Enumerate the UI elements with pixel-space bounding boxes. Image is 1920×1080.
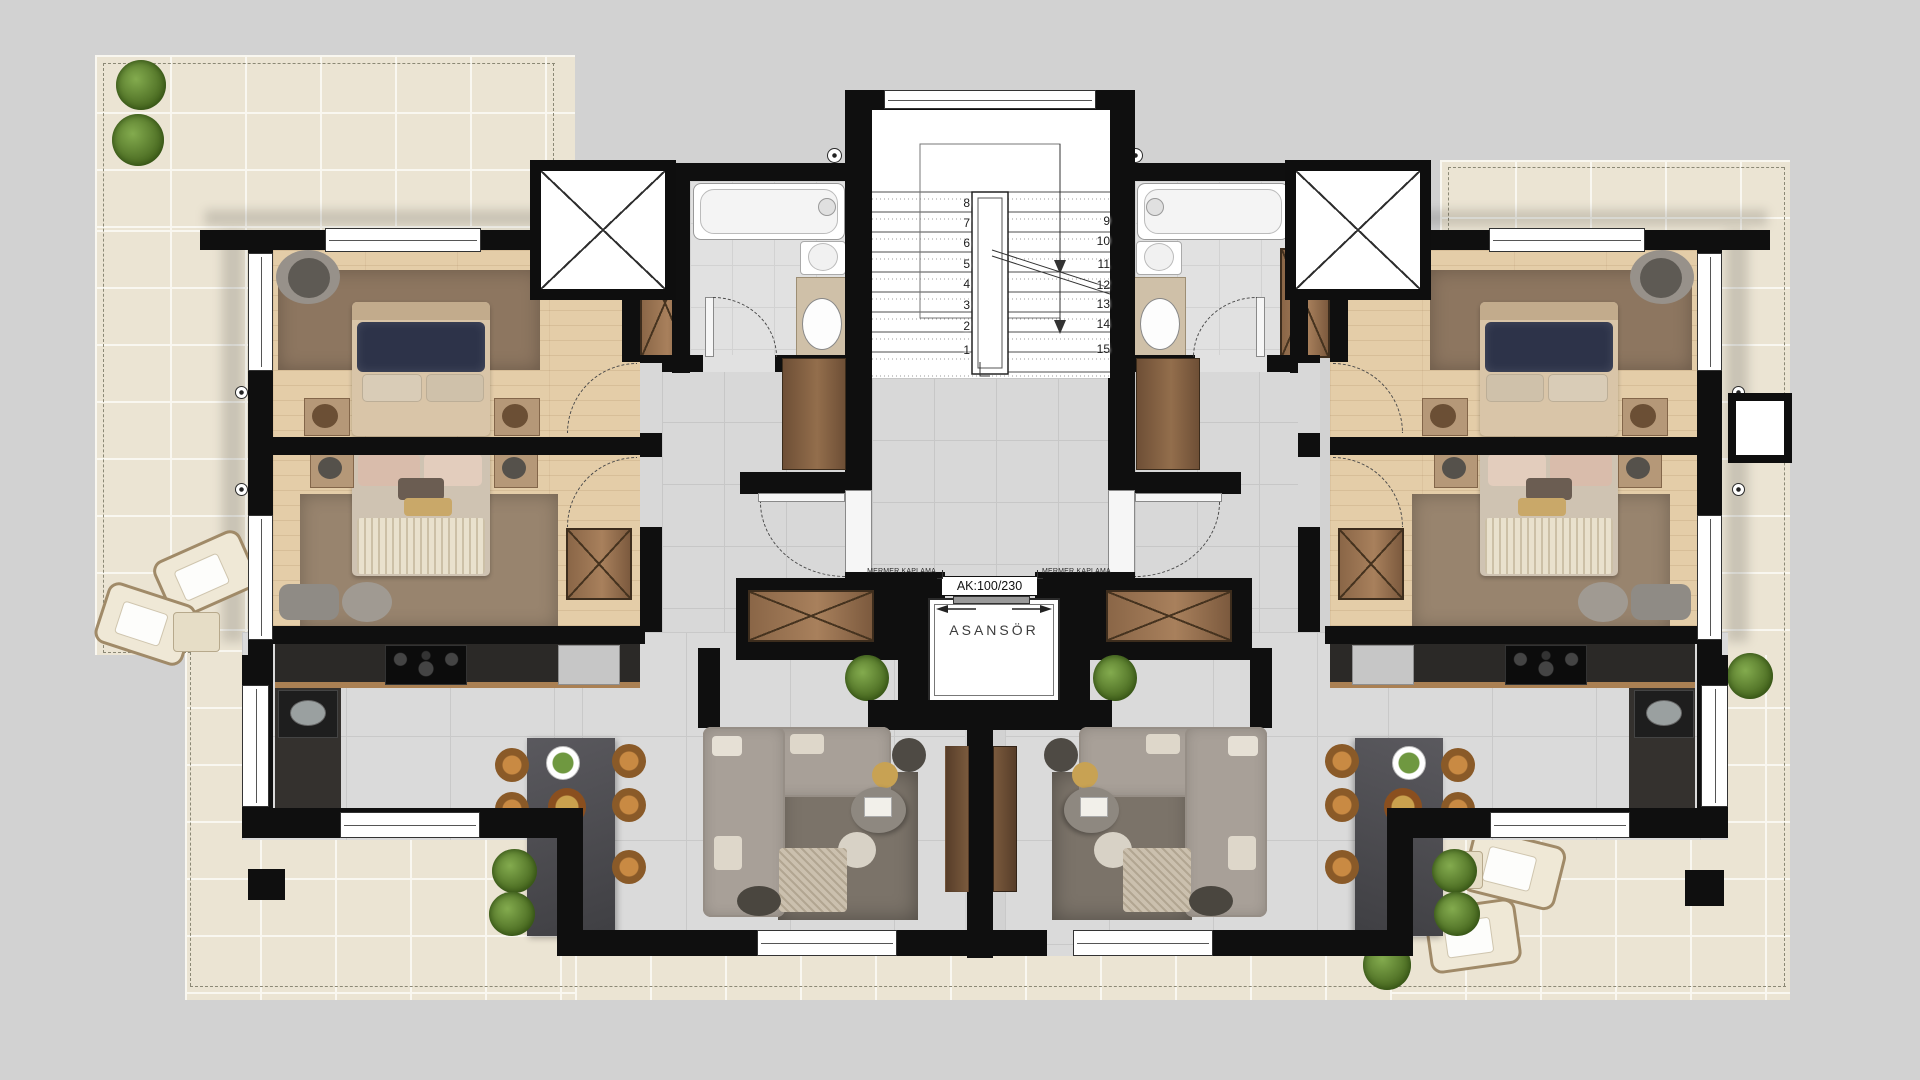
armchair	[1631, 584, 1691, 620]
elevator-lintel-label: AK:100/230	[957, 579, 1022, 593]
coffee-table-book	[864, 797, 892, 817]
wall	[868, 700, 1112, 730]
stair-linework	[872, 110, 1110, 378]
ottoman	[342, 582, 392, 622]
door-stop	[235, 483, 248, 496]
terrace-trim	[190, 652, 191, 986]
nightstand	[502, 457, 526, 479]
ottoman	[779, 848, 847, 912]
wardrobe	[1338, 528, 1404, 600]
elevator-lintel: AK:100/230	[941, 576, 1038, 596]
wall	[1250, 648, 1272, 728]
toilet-seat	[1144, 243, 1174, 271]
hall-cabinet	[782, 358, 846, 470]
door-leaf	[1256, 297, 1265, 357]
coffee-table-book	[1080, 797, 1108, 817]
side-table	[173, 612, 220, 652]
wall	[1213, 930, 1389, 956]
bathtub-inner	[1144, 189, 1282, 234]
wall	[1135, 472, 1241, 494]
pillow	[1518, 498, 1566, 516]
stair-step-number: 3	[946, 298, 970, 312]
marble-cladding-label: MERMER KAPLAMA	[854, 568, 936, 575]
nightstand	[312, 404, 338, 428]
wall	[672, 163, 855, 181]
dining-chair	[495, 748, 529, 782]
cooktop	[1505, 645, 1587, 685]
dishwasher	[1352, 645, 1414, 685]
accent-chair	[737, 886, 781, 916]
nightstand	[1442, 457, 1466, 479]
stair-step-number: 5	[946, 257, 970, 271]
duct-shaft	[530, 160, 676, 300]
sofa-pillow	[1228, 736, 1258, 756]
plant	[1727, 653, 1773, 699]
door-opening	[1298, 363, 1320, 433]
floor-plan: 8 7 6 5 4 3 2 1 9 10 11 12 13 14 15 ASAN…	[0, 0, 1920, 1080]
pillow	[1548, 374, 1608, 402]
armchair-seat	[1640, 258, 1682, 298]
plant	[112, 114, 164, 166]
plant	[489, 892, 535, 936]
hall-cabinet	[1136, 358, 1200, 470]
wall	[740, 472, 846, 494]
nightstand	[318, 457, 342, 479]
door-jamb	[1108, 490, 1135, 578]
door-opening	[703, 355, 775, 372]
sofa-pillow	[712, 736, 742, 756]
pillow	[404, 498, 452, 516]
door-opening	[640, 363, 662, 433]
pillow	[362, 374, 422, 402]
wall	[845, 90, 872, 492]
floor-lamp	[1072, 762, 1098, 788]
wall	[967, 728, 993, 958]
window	[757, 930, 897, 956]
wall	[1330, 437, 1697, 455]
window	[884, 90, 1096, 109]
bathtub-drain	[818, 198, 836, 216]
plant	[845, 655, 889, 701]
window	[242, 685, 269, 807]
wall	[1060, 596, 1090, 710]
wall	[898, 596, 928, 710]
leader-tick	[937, 570, 943, 579]
door-opening	[1298, 457, 1320, 527]
window	[1073, 930, 1213, 956]
armchair-seat	[288, 258, 330, 298]
stair-step-number: 12	[1086, 278, 1110, 292]
window	[1697, 515, 1722, 640]
sofa-pillow	[790, 734, 824, 754]
window	[325, 228, 481, 252]
plant	[1093, 655, 1137, 701]
bed-headboard	[352, 302, 490, 320]
bed-headboard	[1480, 302, 1618, 320]
window	[1490, 812, 1630, 838]
door-leaf	[1135, 493, 1222, 502]
pillow	[398, 478, 444, 500]
sink-bowl	[1646, 700, 1682, 726]
side-table	[892, 738, 926, 772]
ottoman	[1578, 582, 1628, 622]
terrace-trim	[103, 63, 555, 64]
nightstand	[1626, 457, 1650, 479]
shadow	[1412, 210, 1767, 226]
terrace-trim	[103, 63, 104, 653]
stair-step-number: 4	[946, 277, 970, 291]
stair-step-number: 15	[1086, 342, 1110, 356]
door-opening	[1195, 355, 1267, 372]
elevator-label: ASANSÖR	[928, 622, 1060, 638]
wall	[1108, 90, 1135, 492]
sofa-pillow	[1228, 836, 1256, 870]
washbasin	[802, 298, 842, 350]
window	[340, 812, 480, 838]
bed-blanket	[357, 518, 485, 574]
dining-chair	[1325, 788, 1359, 822]
side-shaft	[1728, 393, 1792, 463]
bed-blanket	[1485, 322, 1613, 372]
ottoman	[1123, 848, 1191, 912]
side-table	[1044, 738, 1078, 772]
plant	[1434, 892, 1480, 936]
bed-blanket	[357, 322, 485, 372]
stair-step-number: 1	[946, 343, 970, 357]
elevator-door-arrows	[930, 602, 1058, 616]
shadow	[205, 210, 560, 226]
door-stop	[1732, 483, 1745, 496]
dining-chair	[1325, 744, 1359, 778]
window	[248, 253, 273, 371]
door-stop	[235, 386, 248, 399]
window	[1701, 685, 1728, 807]
vent-symbol	[827, 148, 842, 163]
sofa-pillow	[1146, 734, 1180, 754]
table-plant	[546, 746, 580, 780]
plant	[1432, 849, 1477, 893]
pillow	[1526, 478, 1572, 500]
stair-step-number: 10	[1086, 234, 1110, 248]
stair-step-number: 13	[1086, 297, 1110, 311]
accent-chair	[1189, 886, 1233, 916]
nightstand	[1630, 404, 1656, 428]
stair-step-number: 14	[1086, 317, 1110, 331]
sink-bowl	[290, 700, 326, 726]
wall	[1325, 626, 1721, 644]
terrace-trim	[1448, 167, 1784, 168]
dining-chair	[612, 744, 646, 778]
window	[1697, 253, 1722, 371]
terrace-column	[248, 869, 285, 900]
terrace-column	[1685, 870, 1724, 906]
elevator-car-inner	[934, 604, 1054, 696]
wall	[581, 930, 757, 956]
wall	[249, 626, 645, 644]
cooktop	[385, 645, 467, 685]
floor-lamp	[872, 762, 898, 788]
dining-chair	[612, 850, 646, 884]
window	[248, 515, 273, 640]
door-jamb	[845, 490, 872, 578]
terrace-trim	[553, 63, 554, 161]
stair-step-number: 11	[1086, 257, 1110, 271]
stair-step-number: 7	[946, 216, 970, 230]
wall	[897, 930, 1047, 956]
bathtub-drain	[1146, 198, 1164, 216]
sideboard	[748, 590, 874, 642]
dining-chair	[1441, 748, 1475, 782]
dining-chair	[612, 788, 646, 822]
stair-step-number: 6	[946, 236, 970, 250]
dishwasher	[558, 645, 620, 685]
door-opening	[640, 457, 662, 527]
window	[1489, 228, 1645, 252]
wall	[273, 437, 640, 455]
tv-console	[993, 746, 1017, 892]
sideboard	[1106, 590, 1232, 642]
wall	[698, 648, 720, 728]
marble-cladding-label: MERMER KAPLAMA	[1042, 568, 1124, 575]
sofa-pillow	[714, 836, 742, 870]
leader-tick	[1037, 570, 1043, 579]
terrace-trim	[190, 986, 1786, 987]
duct-shaft	[1285, 160, 1431, 300]
dining-chair	[1325, 850, 1359, 884]
bathtub-inner	[700, 189, 838, 234]
pillow	[1486, 374, 1544, 402]
wall	[1125, 163, 1308, 181]
stair-step-number: 8	[946, 196, 970, 210]
bed-blanket	[1485, 518, 1613, 574]
tv-console	[945, 746, 969, 892]
stair-step-number: 9	[1086, 214, 1110, 228]
table-plant	[1392, 746, 1426, 780]
stair-step-number: 2	[946, 319, 970, 333]
wall	[1387, 828, 1413, 956]
door-leaf	[758, 493, 845, 502]
lobby-floor	[872, 378, 1108, 600]
terrace-top-left	[95, 55, 575, 235]
toilet-seat	[808, 243, 838, 271]
terrace-trim	[1784, 167, 1785, 986]
armchair	[279, 584, 339, 620]
nightstand	[1430, 404, 1456, 428]
wardrobe	[566, 528, 632, 600]
washbasin	[1140, 298, 1180, 350]
nightstand	[502, 404, 528, 428]
plant	[116, 60, 166, 110]
plant	[492, 849, 537, 893]
pillow	[426, 374, 484, 402]
wall	[557, 828, 583, 956]
